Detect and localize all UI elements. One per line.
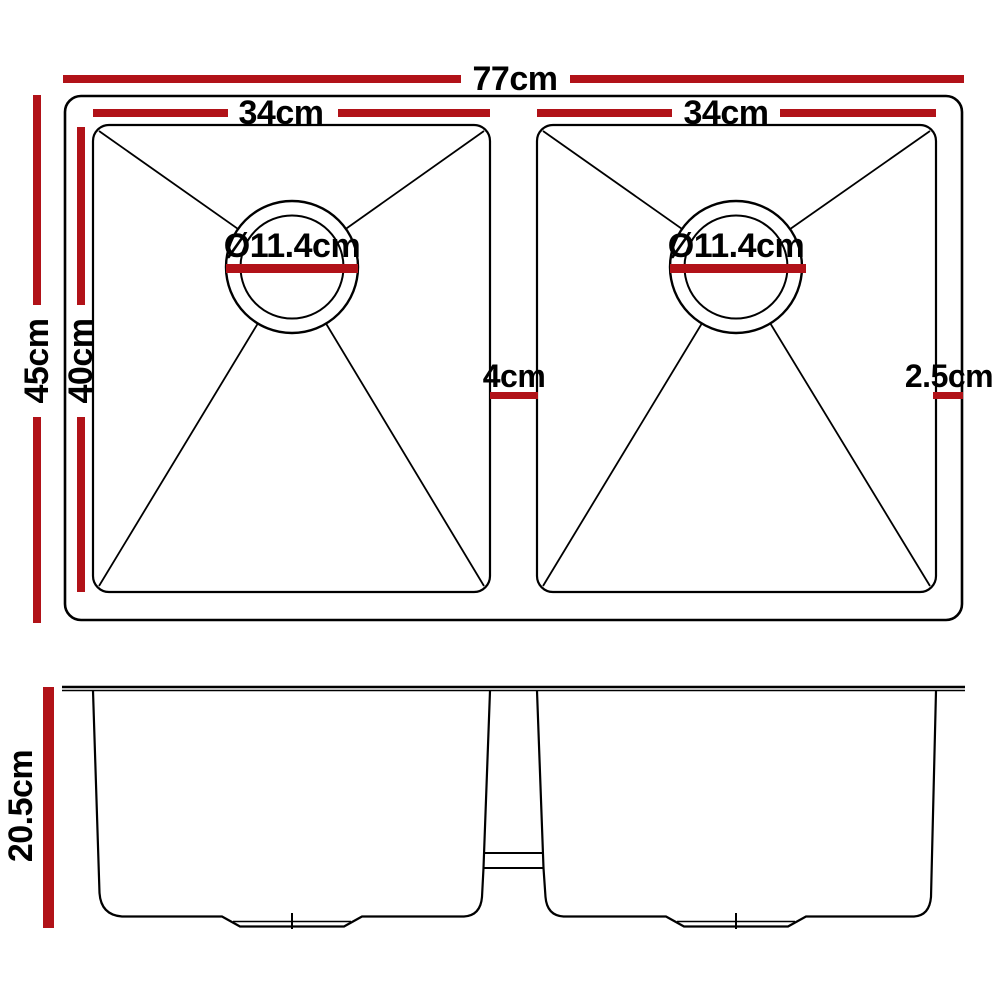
bowl-depth-label: 40cm <box>62 319 100 404</box>
center-divider-width-label: 4cm <box>483 358 546 394</box>
left-drain-diameter-label: Ø11.4cm <box>224 227 360 265</box>
right-bowl-width-label: 34cm <box>684 94 769 132</box>
overall-depth-bar-bottom <box>33 417 41 623</box>
side-bowl-depth-label: 20.5cm <box>2 750 40 862</box>
left-drain-diameter-bar <box>226 264 358 273</box>
overall-depth-label: 45cm <box>18 319 56 404</box>
left-bowl-width-bar-left <box>93 109 228 117</box>
left-bowl-width-bar-right <box>338 109 490 117</box>
side-view: 20.5cm <box>2 687 965 929</box>
right-bowl-slope-lines <box>543 131 930 586</box>
left-bowl-profile <box>93 691 490 927</box>
top-view: 77cm 34cm 34cm Ø11.4cm Ø11.4cm 4cm 2.5cm… <box>18 60 993 623</box>
right-bowl-width-bar-right <box>780 109 936 117</box>
left-bowl-slope-lines <box>99 131 484 586</box>
side-bowl-depth-bar <box>43 687 54 928</box>
overall-depth-bar-top <box>33 95 41 305</box>
overall-width-label: 77cm <box>473 60 558 98</box>
right-bowl-outline <box>537 125 936 592</box>
right-bowl-profile <box>537 691 936 927</box>
diagram-canvas: 77cm 34cm 34cm Ø11.4cm Ø11.4cm 4cm 2.5cm… <box>0 0 999 1000</box>
bowl-depth-bar-bottom <box>77 417 85 592</box>
right-bowl-width-bar-left <box>537 109 672 117</box>
bowl-depth-bar-top <box>77 127 85 305</box>
right-drain-diameter-bar <box>670 264 806 273</box>
left-bowl-width-label: 34cm <box>239 94 324 132</box>
sink-dimension-diagram: 77cm 34cm 34cm Ø11.4cm Ø11.4cm 4cm 2.5cm… <box>0 0 999 1000</box>
right-edge-gap-label: 2.5cm <box>905 358 993 394</box>
left-bowl-outline <box>93 125 490 592</box>
overall-width-bar-left <box>63 75 461 83</box>
overall-width-bar-right <box>570 75 964 83</box>
right-drain-diameter-label: Ø11.4cm <box>668 227 804 265</box>
